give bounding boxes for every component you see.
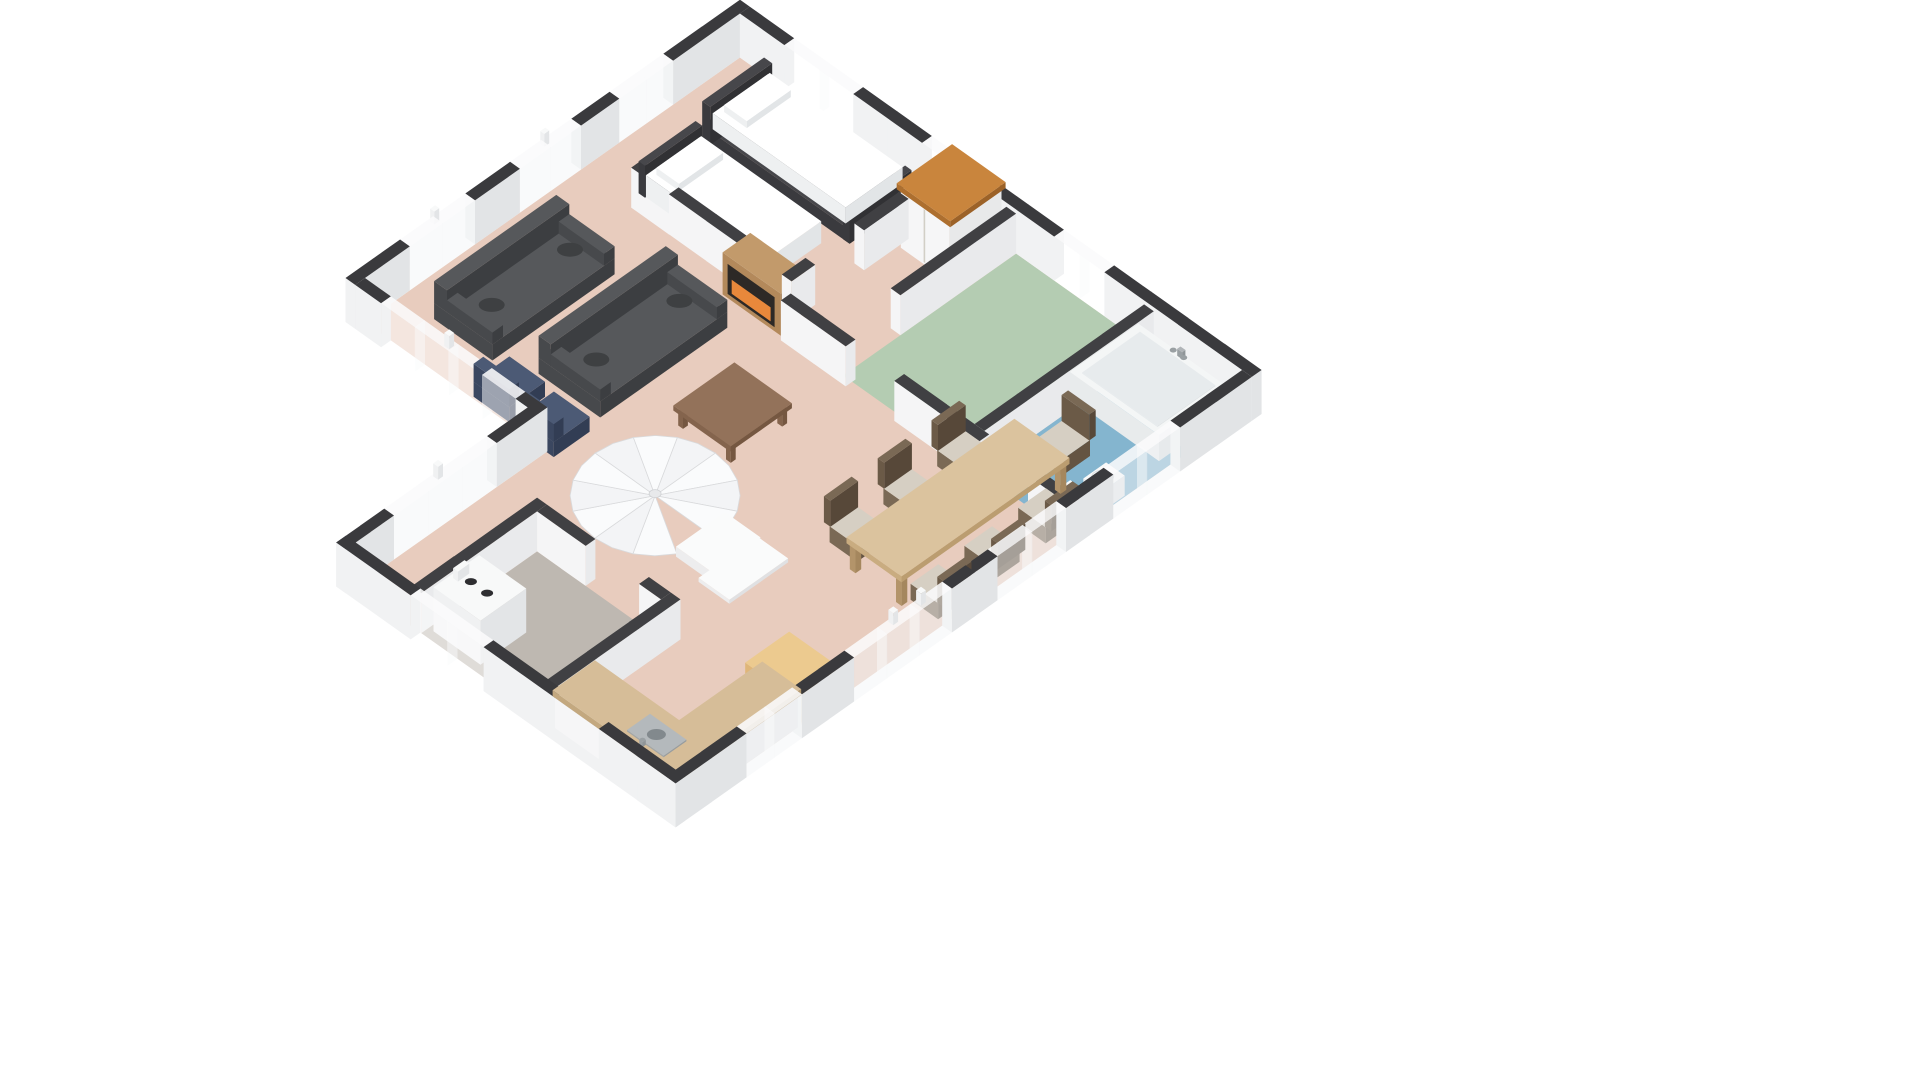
floor-plan-canvas <box>0 0 1920 1080</box>
window-post-5 <box>888 606 898 625</box>
window-post-4 <box>433 460 443 480</box>
window-post-6 <box>916 587 926 606</box>
window-post-3 <box>444 329 454 349</box>
page <box>0 0 1920 1080</box>
